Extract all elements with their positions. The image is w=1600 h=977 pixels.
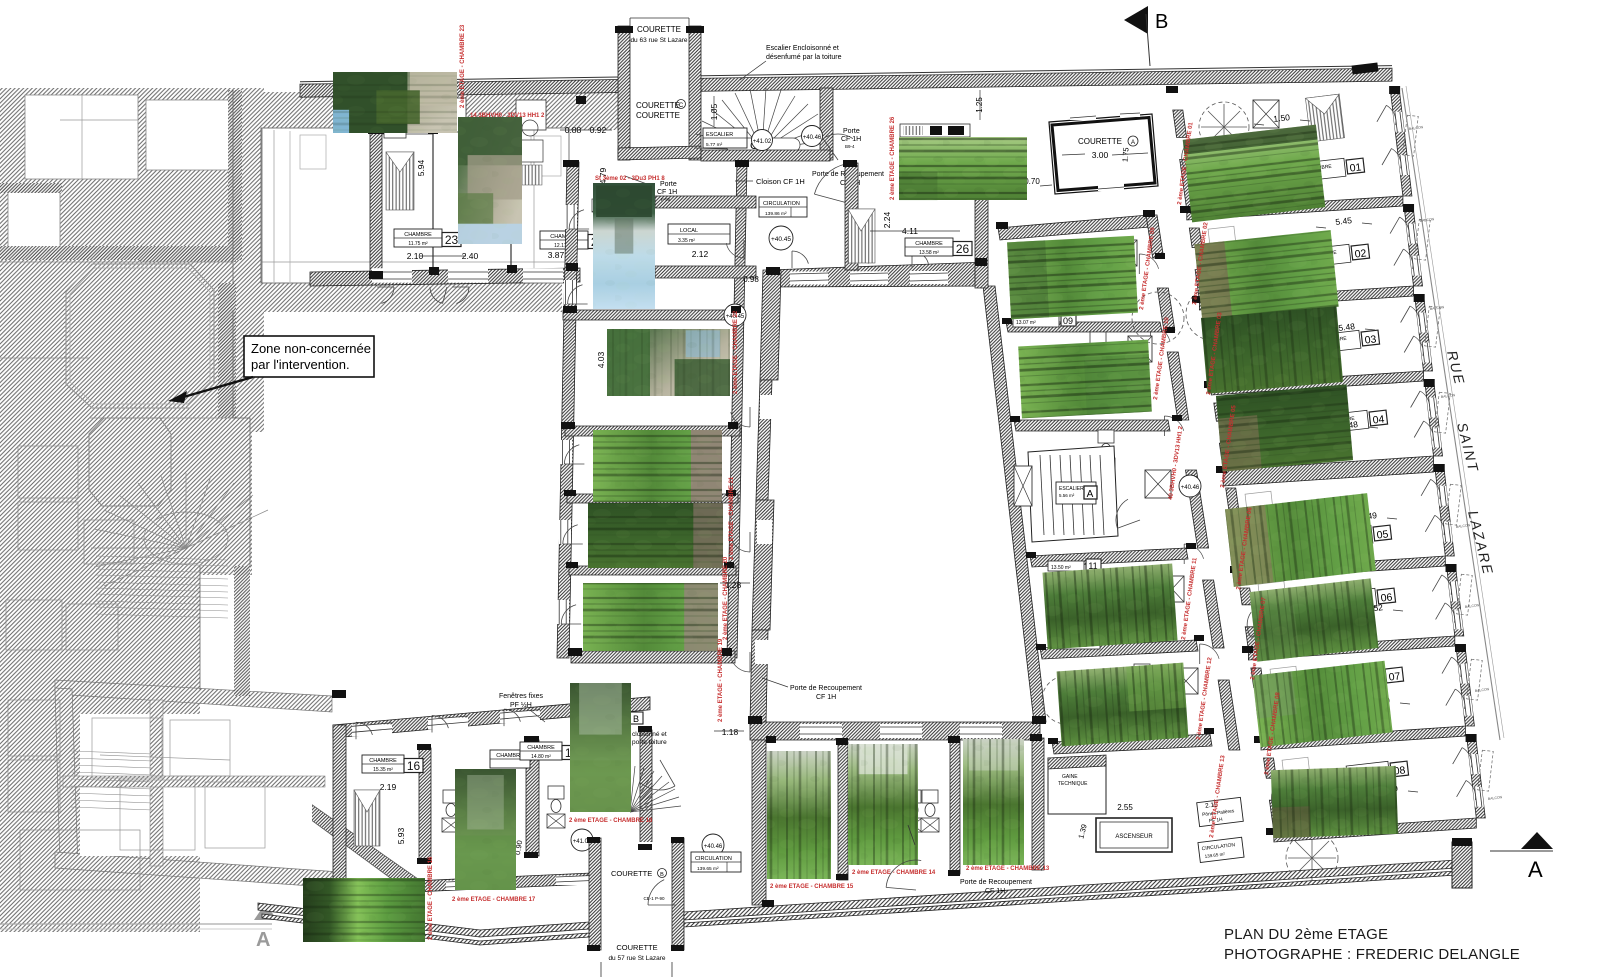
svg-text:Porte: Porte [660, 181, 677, 188]
svg-text:5.93: 5.93 [396, 827, 406, 844]
svg-text:CF 1H: CF 1H [657, 189, 677, 196]
svg-text:2 ème ETAGE - CHAMBRE 21: 2 ème ETAGE - CHAMBRE 21 [729, 476, 735, 560]
svg-text:porte toiture: porte toiture [632, 739, 667, 746]
svg-text:07: 07 [1388, 670, 1401, 683]
svg-text:A: A [1528, 857, 1543, 882]
svg-text:26: 26 [956, 242, 970, 256]
svg-text:01: 01 [1349, 161, 1362, 174]
svg-text:PHOTOGRAPHE : FREDERIC DELANGL: PHOTOGRAPHE : FREDERIC DELANGLE [1224, 946, 1520, 963]
svg-text:13.58 m²: 13.58 m² [919, 250, 939, 256]
svg-text:2.24: 2.24 [882, 211, 892, 228]
svg-text:Cloison CF 1H: Cloison CF 1H [756, 177, 805, 186]
svg-text:CHAMBRE: CHAMBRE [404, 232, 432, 238]
svg-text:02: 02 [1354, 247, 1367, 260]
svg-text:CIRCULATION: CIRCULATION [763, 201, 800, 207]
svg-text:Porte de Recoupement: Porte de Recoupement [960, 879, 1032, 886]
svg-text:ESCALIER: ESCALIER [1059, 486, 1084, 492]
svg-text:+40.45: +40.45 [771, 236, 791, 243]
svg-text:CF 1H: CF 1H [841, 136, 861, 143]
svg-text:2 ème ETAGE - CHAMBRE 23: 2 ème ETAGE - CHAMBRE 23 [460, 24, 466, 108]
svg-text:5.77 m²: 5.77 m² [706, 142, 723, 148]
svg-text:5.94: 5.94 [416, 159, 426, 176]
svg-text:2 ème ETAGE - CHAMBRE 26: 2 ème ETAGE - CHAMBRE 26 [890, 116, 896, 200]
svg-text:CHAMBRE: CHAMBRE [915, 241, 943, 247]
svg-text:Escalier Encloisonné et: Escalier Encloisonné et [766, 45, 839, 52]
svg-text:2 ème ETAGE - CHAMBRE 13: 2 ème ETAGE - CHAMBRE 13 [966, 866, 1050, 872]
svg-text:15.35 m²: 15.35 m² [373, 767, 393, 773]
svg-text:cloisonné et: cloisonné et [632, 731, 667, 738]
svg-text:09: 09 [1063, 316, 1073, 326]
svg-text:ASCENSEUR: ASCENSEUR [1115, 834, 1153, 840]
svg-text:23: 23 [445, 233, 459, 247]
svg-text:+40.46: +40.46 [803, 135, 822, 141]
svg-text:Porte: Porte [843, 128, 860, 135]
svg-text:5.45: 5.45 [1335, 215, 1353, 227]
svg-text:COURETTE: COURETTE [636, 101, 680, 110]
svg-text:Porte de Recoupement: Porte de Recoupement [790, 685, 862, 692]
svg-text:COURETTE: COURETTE [1078, 137, 1122, 146]
svg-text:14.80 m²: 14.80 m² [531, 754, 551, 760]
svg-text:2 ème ETAGE - CHAMBRE 19: 2 ème ETAGE - CHAMBRE 19 [718, 638, 724, 722]
svg-text:du 57 rue St Lazare: du 57 rue St Lazare [608, 955, 665, 962]
svg-text:5.56 m²: 5.56 m² [1059, 493, 1075, 498]
svg-text:13.50 m²: 13.50 m² [1051, 565, 1071, 571]
svg-text:B9-4: B9-4 [845, 144, 855, 149]
svg-text:Zone non-concernée: Zone non-concernée [251, 341, 371, 356]
svg-text:A: A [1131, 140, 1135, 146]
svg-text:St 3ème 02 - 3Du3 PH1 8: St 3ème 02 - 3Du3 PH1 8 [595, 176, 665, 182]
svg-text:05: 05 [1376, 528, 1389, 541]
svg-text:+41.02: +41.02 [753, 139, 772, 145]
svg-text:COURETTE: COURETTE [636, 111, 680, 120]
svg-text:2 ème ETAGE - CHAMBRE 16: 2 ème ETAGE - CHAMBRE 16 [428, 856, 434, 940]
svg-text:2.19: 2.19 [380, 782, 397, 792]
svg-text:2 ème ETAGE - CHAMBRE 15: 2 ème ETAGE - CHAMBRE 15 [770, 884, 854, 890]
svg-text:2 ème ETAGE - CHAMBRE 17: 2 ème ETAGE - CHAMBRE 17 [452, 897, 536, 903]
svg-text:3.35 m²: 3.35 m² [678, 238, 695, 244]
svg-text:+40.46: +40.46 [704, 844, 723, 850]
svg-text:PF ½H: PF ½H [510, 701, 532, 709]
svg-text:COURETTE: COURETTE [637, 25, 681, 34]
svg-text:du 63 rue St Lazare: du 63 rue St Lazare [630, 37, 687, 44]
svg-text:14 3BHVH0 - 3DV13 HH1 2: 14 3BHVH0 - 3DV13 HH1 2 [470, 113, 545, 119]
svg-text:1.50: 1.50 [1273, 112, 1291, 124]
svg-text:1.25: 1.25 [975, 97, 984, 113]
svg-text:désenfumé par la toiture: désenfumé par la toiture [766, 54, 842, 61]
svg-text:COURETTE: COURETTE [611, 869, 652, 878]
svg-text:2 ème ETAGE - CHAMBRE 18: 2 ème ETAGE - CHAMBRE 18 [569, 818, 653, 824]
svg-text:1.18: 1.18 [722, 727, 739, 737]
svg-text:CIRCULATION: CIRCULATION [695, 856, 732, 862]
svg-text:CHAMBRE: CHAMBRE [527, 745, 555, 751]
svg-text:139.65 m²: 139.65 m² [697, 866, 719, 872]
svg-text:A: A [1087, 489, 1094, 500]
svg-text:par l'intervention.: par l'intervention. [251, 357, 350, 372]
svg-text:C: C [679, 103, 684, 109]
svg-text:B: B [660, 872, 664, 878]
svg-text:04: 04 [1372, 413, 1385, 426]
svg-text:3.00: 3.00 [1092, 150, 1109, 160]
svg-text:2 ème ETAGE - CHAMBRE 20: 2 ème ETAGE - CHAMBRE 20 [723, 556, 729, 640]
svg-text:COURETTE: COURETTE [616, 943, 657, 952]
svg-text:2 ème ETAGE - CHAMBRE 22: 2 ème ETAGE - CHAMBRE 22 [733, 310, 739, 394]
svg-text:CE-1 P-90: CE-1 P-90 [643, 896, 665, 901]
svg-text:CHAMBRE: CHAMBRE [369, 758, 397, 764]
svg-text:A: A [256, 929, 270, 951]
svg-text:LOCAL: LOCAL [680, 228, 698, 234]
svg-text:0.98: 0.98 [743, 275, 759, 284]
svg-text:11.75 m²: 11.75 m² [408, 241, 428, 247]
svg-text:B: B [1155, 11, 1168, 33]
svg-text:2 ème ETAGE - CHAMBRE 14: 2 ème ETAGE - CHAMBRE 14 [852, 870, 936, 876]
svg-text:5.48: 5.48 [1338, 321, 1356, 333]
svg-text:TECHNIQUE: TECHNIQUE [1058, 781, 1088, 787]
svg-text:Fenêtres fixes: Fenêtres fixes [499, 693, 543, 700]
svg-text:139.86 m²: 139.86 m² [765, 211, 787, 217]
svg-text:2.55: 2.55 [1117, 803, 1133, 812]
svg-text:+40.46: +40.46 [1181, 485, 1200, 491]
svg-text:CF 1H: CF 1H [816, 694, 836, 701]
svg-text:ESCALIER: ESCALIER [706, 132, 733, 138]
svg-text:PLAN DU 2ème ETAGE: PLAN DU 2ème ETAGE [1224, 926, 1388, 943]
svg-text:16: 16 [407, 759, 421, 773]
svg-text:03: 03 [1364, 333, 1377, 346]
svg-text:CF 1H: CF 1H [985, 888, 1005, 895]
svg-text:F-95: F-95 [661, 197, 671, 202]
svg-text:13.07 m²: 13.07 m² [1016, 320, 1036, 326]
svg-text:GAINE: GAINE [1062, 774, 1078, 780]
svg-text:B: B [633, 714, 639, 724]
svg-text:3.87: 3.87 [548, 250, 565, 260]
svg-text:4.03: 4.03 [596, 351, 606, 368]
svg-text:2.12: 2.12 [692, 249, 709, 259]
